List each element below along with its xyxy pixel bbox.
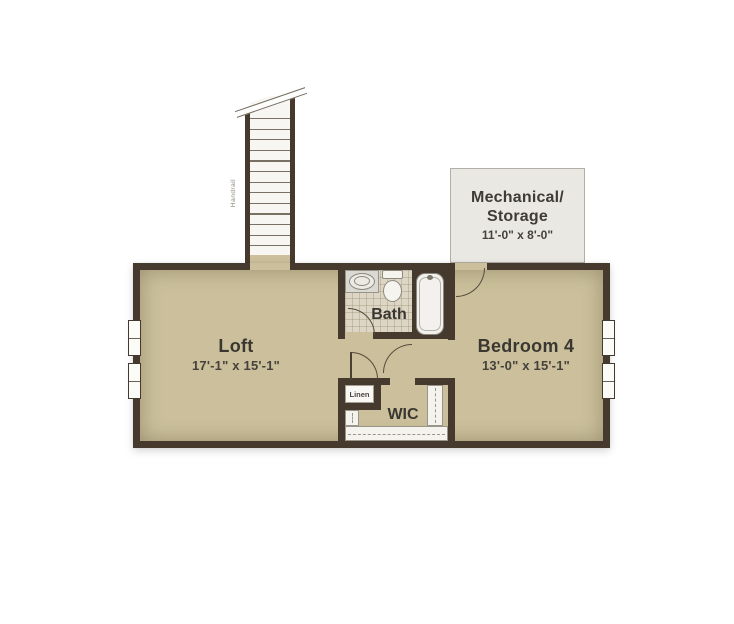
stair-opening: [250, 263, 290, 270]
loft-window-top: [128, 320, 141, 356]
loft-name: Loft: [160, 335, 312, 358]
bedroom4-label: Bedroom 4 13'-0" x 15'-1": [450, 335, 602, 374]
bedroom-window-bottom: [602, 363, 615, 399]
mechanical-storage-room: Mechanical/ Storage 11'-0" x 8'-0": [450, 168, 585, 263]
floor-plan: Mechanical/ Storage 11'-0" x 8'-0" Handr…: [0, 0, 734, 624]
stair-tread: [250, 129, 290, 130]
linen-label: Linen: [350, 390, 370, 399]
bath-label: Bath: [364, 306, 414, 324]
stair-right-wall: [290, 93, 295, 270]
bedroom-wall-lower: [448, 378, 455, 441]
stair-tread: [250, 245, 290, 246]
mechanical-room-name-line2: Storage: [487, 207, 548, 226]
closet-top-wall-right: [415, 378, 448, 385]
bedroom4-name: Bedroom 4: [450, 335, 602, 358]
closet-left-wall: [338, 378, 345, 441]
stair-tread: [250, 150, 290, 151]
bath-bottom-wall-stub: [338, 332, 345, 339]
tub-faucet-icon: [427, 275, 433, 280]
handrail-label: Handrail: [229, 171, 239, 215]
mechanical-room-name-line1: Mechanical/: [471, 188, 564, 207]
stair-tread: [250, 171, 290, 172]
linen-bottom-wall: [345, 403, 381, 410]
closet-top-wall-left: [338, 378, 390, 385]
bedroom-window-top: [602, 320, 615, 356]
linen-closet: Linen: [345, 385, 374, 403]
stair-tread: [250, 139, 290, 140]
wic-label: WIC: [378, 406, 428, 424]
stair-tread: [250, 160, 290, 161]
stair-left-wall: [245, 113, 250, 270]
stair-treads: [250, 96, 290, 255]
stair-tread: [250, 192, 290, 193]
stair-tread: [250, 118, 290, 119]
toilet-icon: [383, 280, 402, 302]
bathtub-rim: [419, 277, 441, 331]
stair-tread: [250, 224, 290, 225]
wic-shelf-right: [427, 385, 443, 426]
mechanical-room-dimensions: 11'-0" x 8'-0": [482, 228, 553, 242]
toilet-tank-icon: [382, 270, 403, 279]
wic-shelf-left: [345, 410, 359, 426]
wic-shelf-bottom: [345, 426, 448, 441]
stair-tread: [250, 235, 290, 236]
loft-label: Loft 17'-1" x 15'-1": [160, 335, 312, 374]
loft-window-bottom: [128, 363, 141, 399]
loft-dimensions: 17'-1" x 15'-1": [160, 358, 312, 374]
bedroom4-dimensions: 13'-0" x 15'-1": [450, 358, 602, 374]
sink-basin-icon: [354, 276, 370, 286]
bedroom-wall-upper: [448, 270, 455, 340]
stair-tread: [250, 213, 290, 214]
stair-tread: [250, 182, 290, 183]
bath-left-wall: [338, 270, 345, 332]
stair-tread: [250, 203, 290, 204]
